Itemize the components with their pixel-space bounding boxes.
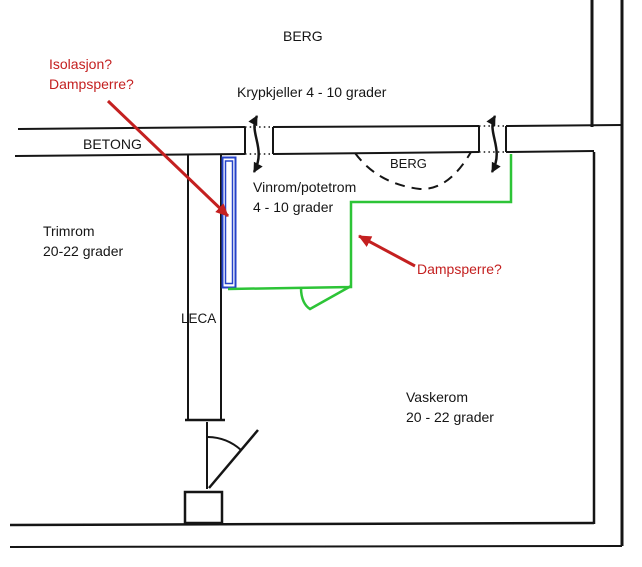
question-right-annotation: Dampsperre? — [417, 259, 502, 279]
red-arrow-to-insulation — [108, 101, 228, 216]
question-top-line1: Isolasjon? — [49, 54, 134, 74]
vaskerom-line1: Vaskerom — [406, 387, 494, 407]
trimrom-line2: 20-22 grader — [43, 241, 123, 261]
vaskerom-label: Vaskerom 20 - 22 grader — [406, 387, 494, 427]
trimrom-line1: Trimrom — [43, 221, 123, 241]
vinrom-line1: Vinrom/potetrom — [253, 177, 356, 197]
airflow-arrow-left — [254, 116, 259, 172]
krypkjeller-label: Krypkjeller 4 - 10 grader — [237, 82, 386, 102]
leca-label: LECA — [181, 309, 216, 329]
question-top-line2: Dampsperre? — [49, 74, 134, 94]
insulation-blue-rect — [223, 158, 236, 288]
vapor-barrier-flap — [301, 286, 351, 309]
red-arrow-to-vapor-barrier — [359, 236, 415, 266]
door-swing — [207, 422, 258, 489]
vaskerom-line2: 20 - 22 grader — [406, 407, 494, 427]
trimrom-label: Trimrom 20-22 grader — [43, 221, 123, 261]
floor — [10, 523, 622, 547]
vinrom-line2: 4 - 10 grader — [253, 197, 356, 217]
vinrom-label: Vinrom/potetrom 4 - 10 grader — [253, 177, 356, 217]
floorplan-sketch: BERG Isolasjon? Dampsperre? Krypkjeller … — [0, 0, 642, 567]
right-wall — [592, 0, 622, 546]
berg-pocket-label: BERG — [390, 156, 427, 172]
betong-label: BETONG — [83, 134, 142, 154]
berg-top-label: BERG — [283, 26, 323, 46]
airflow-arrow-right — [492, 116, 497, 172]
post-box — [185, 492, 222, 523]
question-top-annotation: Isolasjon? Dampsperre? — [49, 54, 134, 94]
